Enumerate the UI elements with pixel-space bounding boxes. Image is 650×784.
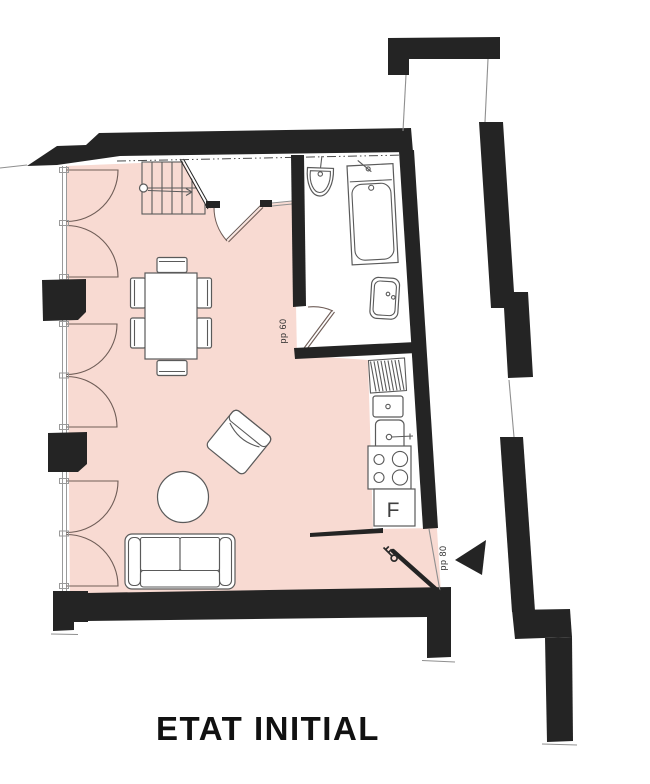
sofa: [125, 534, 235, 589]
bathtub: [347, 159, 398, 265]
wall-pier: [48, 432, 87, 472]
entrance-arrow-icon: [455, 540, 486, 575]
bathroom-sink: [369, 277, 399, 320]
dining-chair: [131, 278, 146, 308]
closet-door-jamb: [206, 201, 220, 208]
bathroom-door-label: pp 60: [278, 318, 288, 343]
bathroom-partition-wall: [291, 155, 306, 307]
stair-newel: [140, 184, 148, 192]
dining-table: [145, 273, 197, 359]
floor-plan-svg: F: [0, 0, 650, 784]
dining-chair: [197, 278, 212, 308]
dining-chair: [157, 258, 187, 273]
corridor-wall-mid: [479, 122, 533, 378]
dining-chair: [197, 318, 212, 348]
cooktop: [368, 446, 411, 489]
corridor-wall-step: [512, 609, 572, 639]
exterior-wall-bottom: [86, 587, 451, 658]
fridge-label: F: [387, 499, 400, 522]
wall-pier: [42, 279, 86, 321]
floor-plan-page: F: [0, 0, 650, 784]
dining-chair: [131, 318, 146, 348]
corridor-wall-end: [545, 637, 573, 742]
round-table: [158, 472, 209, 523]
plan-title: ETAT INITIAL: [156, 710, 380, 747]
corridor-wall-top: [388, 37, 500, 75]
dining-chair: [157, 361, 187, 376]
entrance-door-label: pp 80: [438, 545, 448, 570]
kitchen-sink-small: [373, 396, 403, 417]
corridor-wall-lower: [500, 437, 535, 612]
closet-door-jamb: [260, 200, 272, 207]
fridge: F: [374, 489, 415, 526]
corner-wall-bottom-left: [53, 591, 88, 631]
